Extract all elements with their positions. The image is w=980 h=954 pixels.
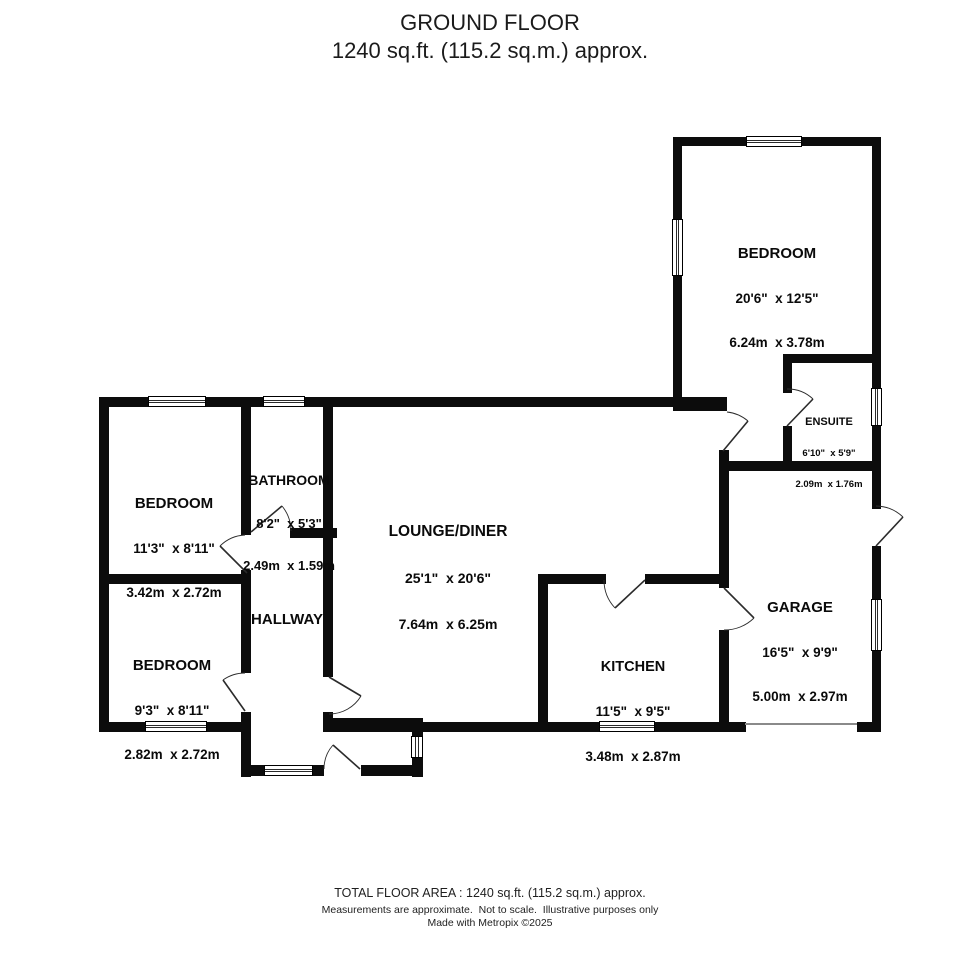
room-label-bedroom-rear: BEDROOM 9'3" x 8'11" 2.82m x 2.72m xyxy=(124,628,219,793)
door-kitchen-garage-leaf xyxy=(724,588,754,618)
room-name: KITCHEN xyxy=(585,660,680,676)
room-name: BATHROOM xyxy=(243,473,335,488)
room-label-garage: GARAGE 16'5" x 9'9" 5.00m x 2.97m xyxy=(752,570,847,735)
room-name: BEDROOM xyxy=(729,246,824,263)
door-kitchen-garage-arc xyxy=(724,618,754,630)
door-bedroom-front-arc xyxy=(220,535,245,546)
window-bedroom-main-left xyxy=(672,219,683,276)
room-label-bedroom-front: BEDROOM 11'3" x 8'11" 3.42m x 2.72m xyxy=(126,466,221,631)
wall-ensuite-left-lower xyxy=(783,426,792,466)
room-dims-metric: 3.42m x 2.72m xyxy=(126,586,221,601)
wall-kitchen-top-a xyxy=(538,574,606,584)
wall-bottom-f xyxy=(857,722,881,732)
room-label-lounge: LOUNGE/DINER 25'1" x 20'6" 7.64m x 6.25m xyxy=(389,492,508,663)
room-dims-imperial: 11'3" x 8'11" xyxy=(126,542,221,557)
door-bedroom-rear-leaf xyxy=(223,680,245,711)
room-dims-metric: 5.00m x 2.97m xyxy=(752,690,847,705)
wall-porch-bottom-a xyxy=(251,765,265,776)
room-label-bedroom-main: BEDROOM 20'6" x 12'5" 6.24m x 3.78m xyxy=(729,216,824,381)
door-front-entrance-leaf xyxy=(333,745,360,769)
room-dims-imperial: 20'6" x 12'5" xyxy=(729,292,824,307)
door-kitchen-leaf xyxy=(615,580,645,608)
door-lounge-hall-arc xyxy=(329,696,361,714)
disclaimer-text: Measurements are approximate. Not to sca… xyxy=(0,904,980,917)
window-bedroom-main-top xyxy=(746,136,802,147)
wall-main-left xyxy=(99,397,109,732)
wall-wing-right-upper xyxy=(872,137,881,509)
window-garage-right xyxy=(871,599,882,651)
room-name: BEDROOM xyxy=(124,658,219,675)
window-porch-right xyxy=(411,736,423,758)
window-porch-bottom xyxy=(264,765,313,776)
door-bedroom-rear-arc xyxy=(223,673,245,680)
credit-text: Made with Metropix ©2025 xyxy=(0,917,980,930)
room-name: ENSUITE xyxy=(795,416,862,428)
total-floor-area: TOTAL FLOOR AREA : 1240 sq.ft. (115.2 sq… xyxy=(0,886,980,900)
room-dims-imperial: 25'1" x 20'6" xyxy=(389,571,508,586)
floorplan-canvas: BEDROOM 20'6" x 12'5" 6.24m x 3.78m ENSU… xyxy=(0,0,980,954)
door-front-entrance-arc xyxy=(324,745,333,769)
window-bathroom-top xyxy=(263,396,305,407)
room-name: GARAGE xyxy=(752,600,847,617)
wall-bottom-c xyxy=(323,718,423,732)
door-lounge-hall-leaf xyxy=(329,677,361,696)
wall-main-top-junction xyxy=(673,397,727,411)
room-dims-metric: 7.64m x 6.25m xyxy=(389,617,508,632)
room-dims-metric: 2.82m x 2.72m xyxy=(124,748,219,763)
room-dims-imperial: 6'10" x 5'9" xyxy=(795,449,862,459)
room-dims-imperial: 16'5" x 9'9" xyxy=(752,646,847,661)
room-dims-imperial: 11'5" x 9'5" xyxy=(585,705,680,720)
wall-kitchen-left xyxy=(538,574,548,722)
window-ensuite-right xyxy=(871,388,882,426)
door-kitchen-arc xyxy=(604,580,615,608)
wall-lounge-right xyxy=(719,450,729,588)
wall-bottom-d xyxy=(423,722,600,732)
window-bedroom-front-top xyxy=(148,396,206,407)
room-dims-metric: 2.49m x 1.59m xyxy=(243,559,335,573)
room-name: LOUNGE/DINER xyxy=(389,523,508,540)
room-dims-metric: 3.48m x 2.87m xyxy=(585,750,680,765)
door-bedroom-main-leaf xyxy=(723,421,748,451)
room-name: BEDROOM xyxy=(126,496,221,513)
door-bedroom-main-arc xyxy=(727,412,748,421)
plan-footer: TOTAL FLOOR AREA : 1240 sq.ft. (115.2 sq… xyxy=(0,886,980,930)
room-label-ensuite: ENSUITE 6'10" x 5'9" 2.09m x 1.76m xyxy=(795,395,862,511)
room-dims-metric: 6.24m x 3.78m xyxy=(729,336,824,351)
room-label-kitchen: KITCHEN 11'5" x 9'5" 3.48m x 2.87m xyxy=(585,630,680,794)
room-label-hallway: HALLWAY xyxy=(251,579,323,662)
door-garage-side-leaf xyxy=(876,517,903,546)
wall-kitchen-garage-lower xyxy=(719,630,729,722)
room-dims-imperial: 9'3" x 8'11" xyxy=(124,704,219,719)
floorplan-page: { "header": { "title": "GROUND FLOOR", "… xyxy=(0,0,980,954)
wall-porch-bottom-b xyxy=(312,765,324,776)
room-dims-imperial: 8'2" x 5'3" xyxy=(243,517,335,531)
room-name: HALLWAY xyxy=(251,612,323,629)
room-dims-metric: 2.09m x 1.76m xyxy=(795,480,862,490)
wall-kitchen-top-b xyxy=(645,574,725,584)
